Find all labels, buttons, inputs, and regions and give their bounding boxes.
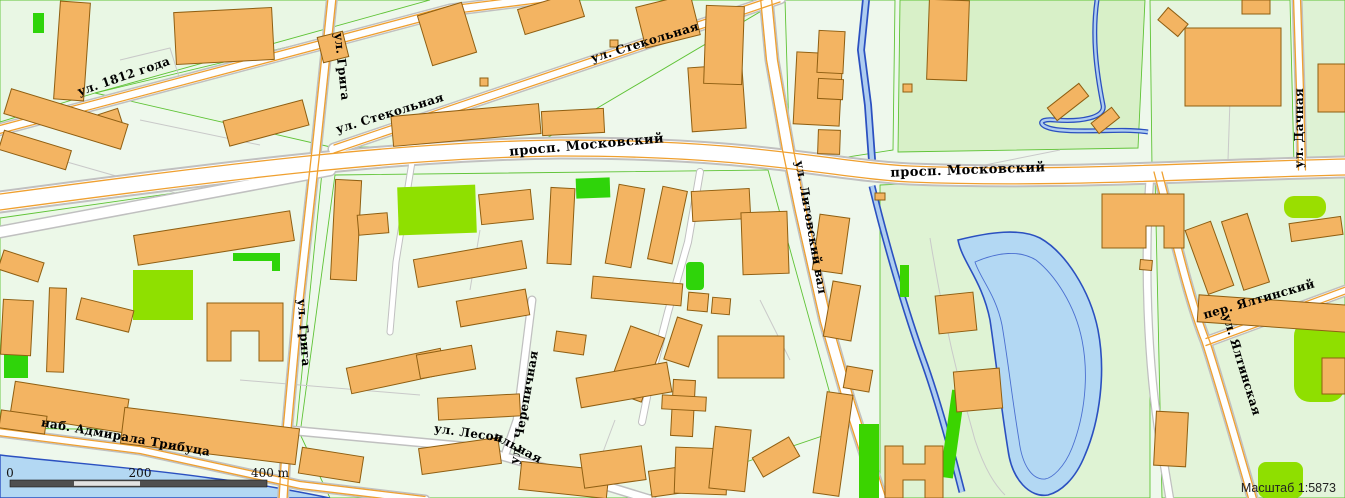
scale-bar-light-segment [74,481,140,486]
scale-label-400m: 400 m [251,466,290,480]
scale-caption: Масштаб 1:5873 [1241,481,1336,495]
scale-label-0: 0 [6,466,14,480]
map-canvas[interactable]: ул. 1812 года ул. Грига ул. Грига ул. Ст… [0,0,1345,498]
scale-label-200: 200 [129,466,152,480]
street-label-dachnaya: ул. Дачная [1292,88,1306,168]
